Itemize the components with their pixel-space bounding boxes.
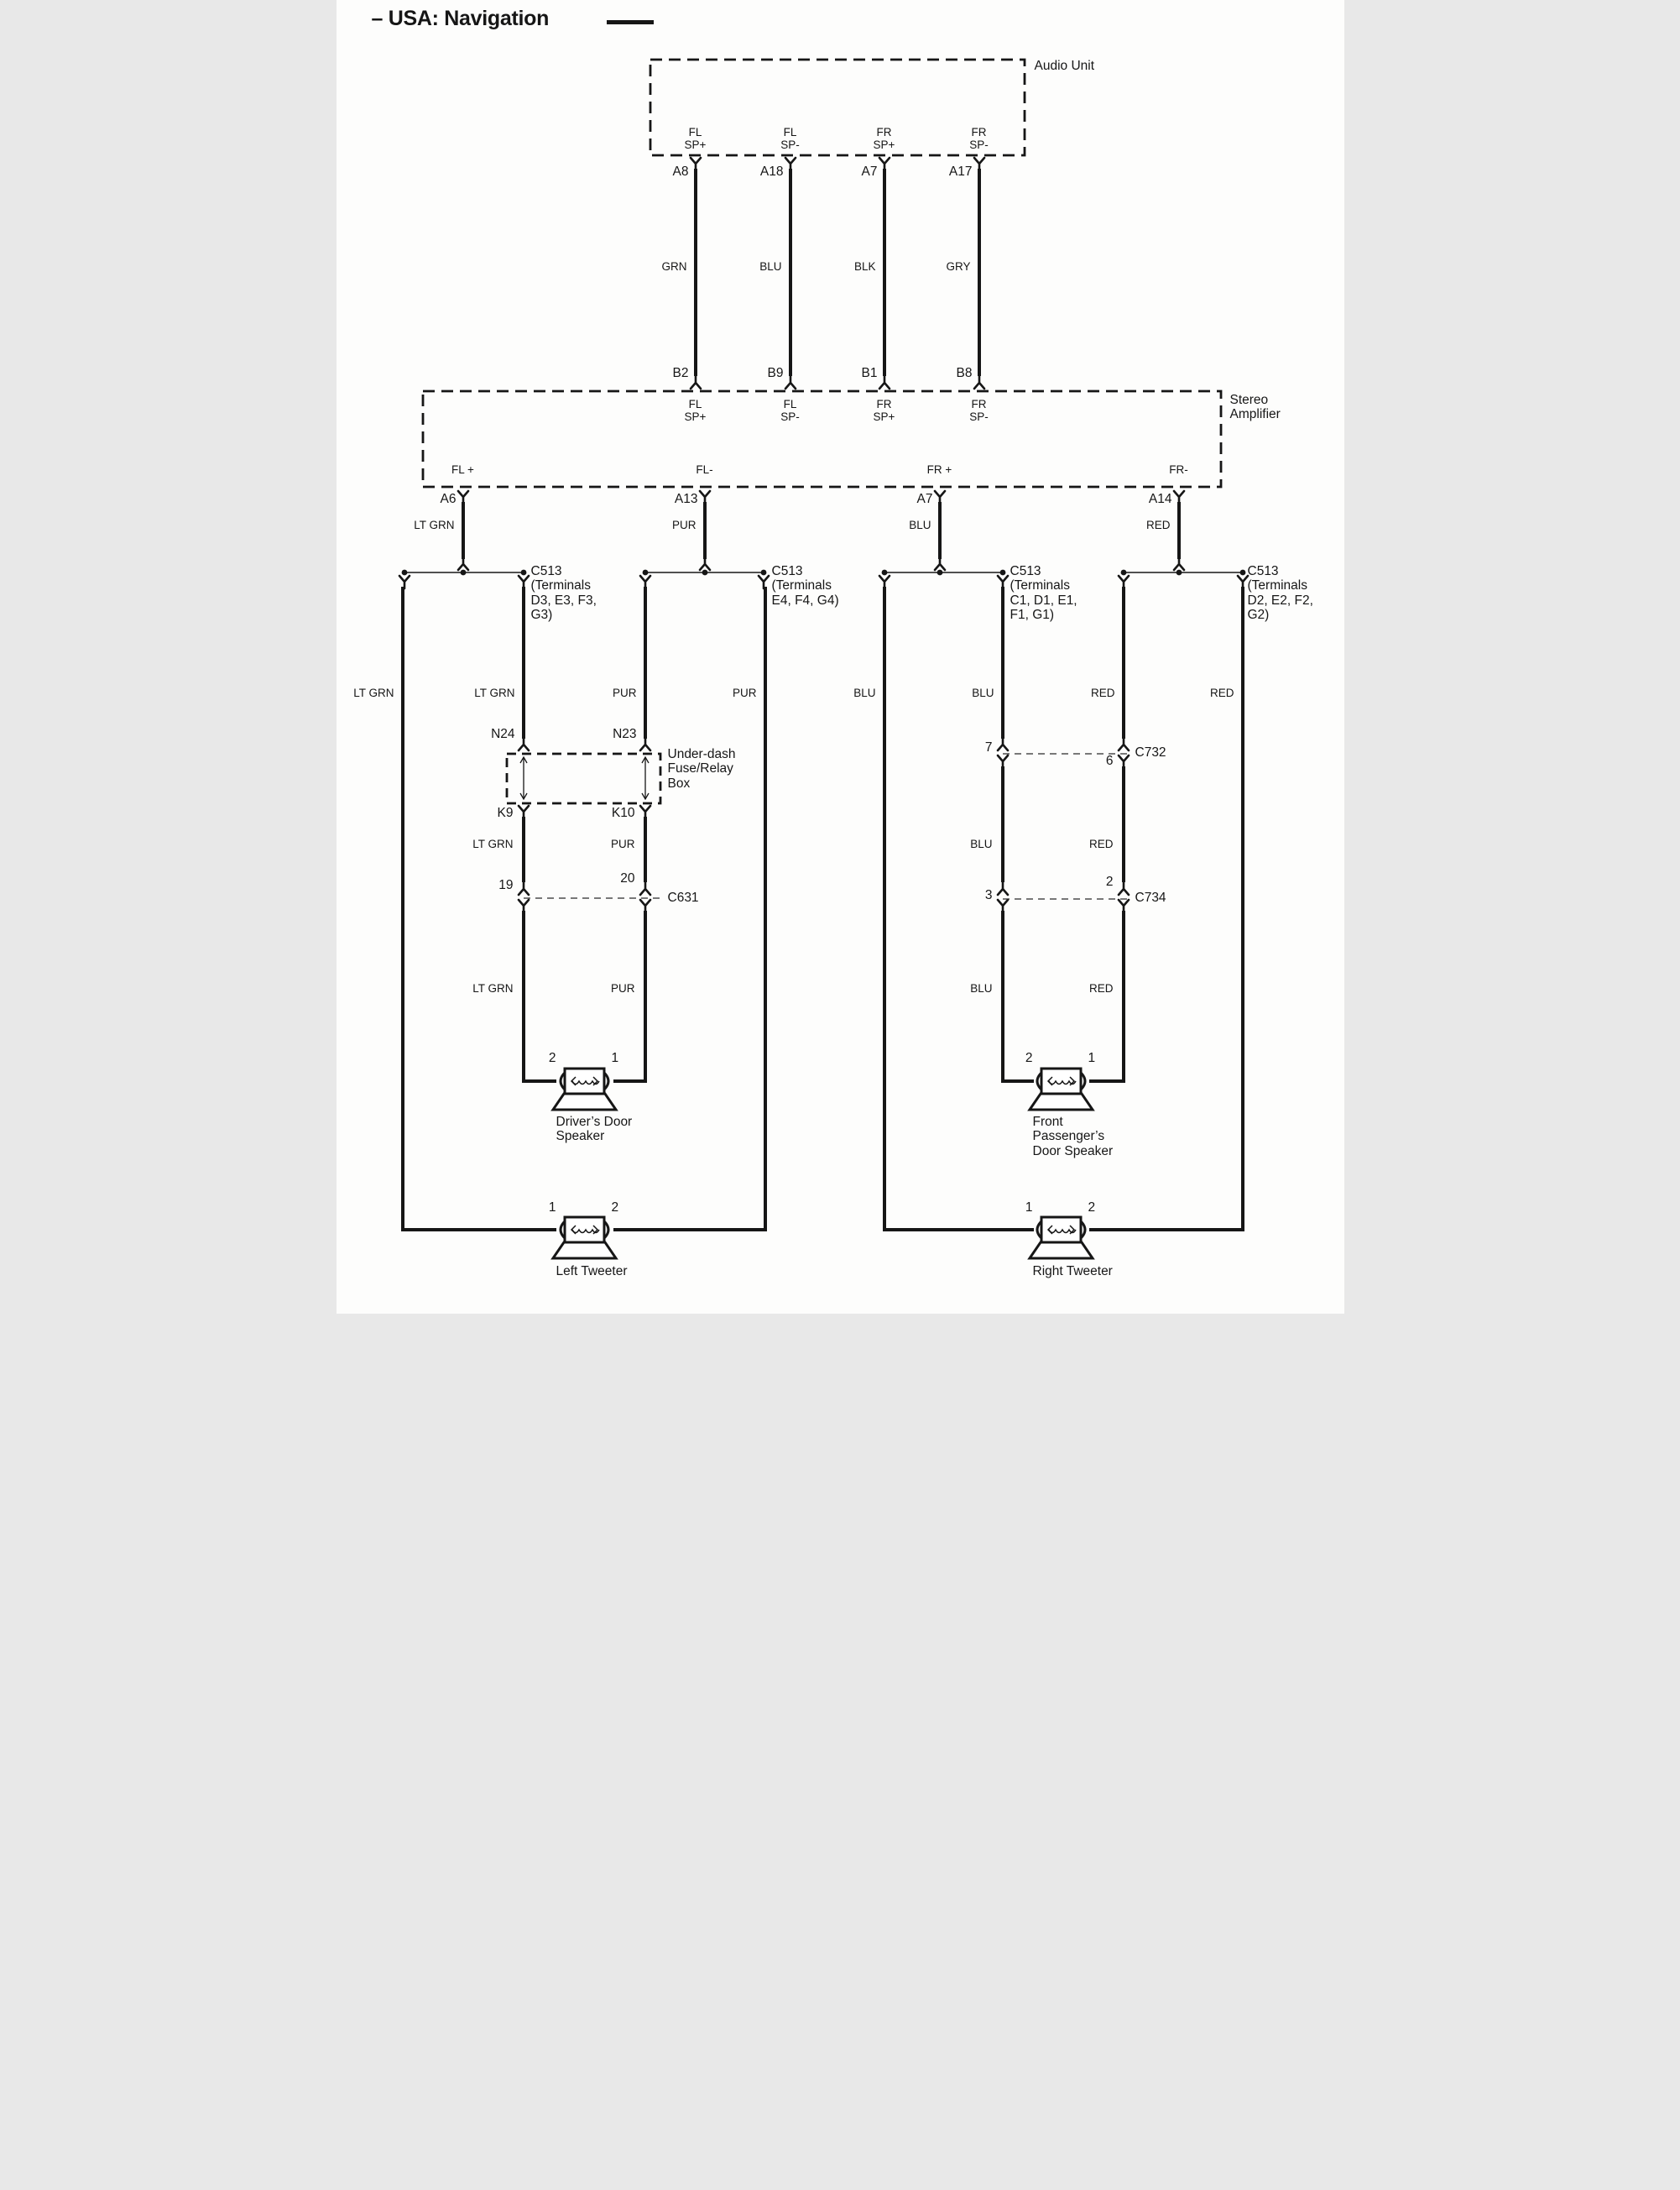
terminal-a17: A17: [922, 165, 973, 179]
driver-speaker-pin1: 1: [612, 1051, 619, 1065]
passenger-speaker-pin1: 1: [1088, 1051, 1096, 1065]
wire7-color-mid: RED: [1063, 838, 1114, 850]
terminal-n24: N24: [465, 727, 515, 741]
amp-pin-fr-sp-minus: FRSP-: [956, 398, 1003, 423]
wire-color-blu-top: BLU: [732, 260, 782, 273]
inline-connector-forks: [519, 738, 1129, 912]
connector-c513-3: C513(TerminalsC1, D1, E1,F1, G1): [1010, 564, 1077, 622]
wire3-color-low: PUR: [585, 982, 635, 995]
wire5-color: BLU: [826, 687, 876, 699]
amp-out-fl-plus: FL +: [443, 463, 483, 476]
wire1-color: LT GRN: [344, 687, 394, 699]
amp-out-fr-minus: FR-: [1159, 463, 1199, 476]
terminal-b2: B2: [639, 366, 689, 380]
amp-output-wires: [463, 502, 1179, 559]
wire7-color: RED: [1065, 687, 1115, 699]
title-rule: [607, 20, 654, 24]
audio-to-amp-connector-forks: [691, 158, 984, 389]
passenger-speaker-label: FrontPassenger’sDoor Speaker: [1033, 1115, 1114, 1158]
terminal-a6: A6: [406, 492, 457, 506]
pin-7: 7: [942, 740, 993, 755]
wire-color-grn: GRN: [637, 260, 687, 273]
driver-door-speaker-icon: [553, 1069, 616, 1110]
pin-6: 6: [1063, 754, 1114, 768]
terminal-n23: N23: [587, 727, 637, 741]
audio-pin-fl-sp-minus: FLSP-: [767, 126, 814, 151]
terminal-b8: B8: [922, 366, 973, 380]
front-passenger-door-speaker-icon: [1030, 1069, 1093, 1110]
audio-pin-fr-sp-minus: FRSP-: [956, 126, 1003, 151]
terminal-k10: K10: [585, 806, 635, 820]
wire-color-pur-a13: PUR: [646, 519, 697, 531]
wire6-color-low: BLU: [942, 982, 993, 995]
wire-color-blk: BLK: [826, 260, 876, 273]
pin-3: 3: [942, 888, 993, 902]
wire7-color-low: RED: [1063, 982, 1114, 995]
terminal-a8: A8: [639, 165, 689, 179]
wire6-color-mid: BLU: [942, 838, 993, 850]
fuse-relay-box: [507, 754, 660, 803]
wire-color-gry: GRY: [921, 260, 971, 273]
amp-output-forks: [458, 491, 1184, 570]
terminal-b1: B1: [827, 366, 878, 380]
wire3-color-mid: PUR: [585, 838, 635, 850]
connector-c631: C631: [668, 891, 699, 905]
left-tweeter-pin2: 2: [612, 1200, 619, 1215]
wire3-color: PUR: [587, 687, 637, 699]
wire4-color: PUR: [707, 687, 757, 699]
connector-c513-1: C513(TerminalsD3, E3, F3,G3): [531, 564, 597, 622]
wire6-color: BLU: [944, 687, 994, 699]
terminal-a18: A18: [733, 165, 784, 179]
wire2-color-low: LT GRN: [463, 982, 514, 995]
terminal-a13: A13: [648, 492, 698, 506]
terminal-b9: B9: [733, 366, 784, 380]
driver-speaker-label: Driver’s DoorSpeaker: [556, 1115, 633, 1144]
left-tweeter-label: Left Tweeter: [556, 1264, 628, 1278]
pin-20: 20: [585, 871, 635, 886]
wire-color-red-a14: RED: [1120, 519, 1171, 531]
connector-c734: C734: [1135, 891, 1166, 905]
wire-color-ltgrn-a6: LT GRN: [404, 519, 455, 531]
wire-color-blu-a7: BLU: [881, 519, 931, 531]
right-tweeter-pin1: 1: [983, 1200, 1033, 1215]
terminal-k9: K9: [463, 806, 514, 820]
amp-pin-fr-sp-plus: FRSP+: [861, 398, 908, 423]
audio-pin-fr-sp-plus: FRSP+: [861, 126, 908, 151]
amp-out-fl-minus: FL-: [685, 463, 725, 476]
connector-c513-4: C513(TerminalsD2, E2, F2,G2): [1248, 564, 1313, 622]
left-tweeter-icon: [553, 1217, 616, 1258]
harness-wires: [403, 587, 1243, 1230]
driver-speaker-pin2: 2: [506, 1051, 556, 1065]
terminal-a7-audio: A7: [827, 165, 878, 179]
wire2-color: LT GRN: [465, 687, 515, 699]
passenger-speaker-pin2: 2: [983, 1051, 1033, 1065]
fuse-box-internal-links: [520, 757, 649, 799]
left-tweeter-pin1: 1: [506, 1200, 556, 1215]
wire2-color-mid: LT GRN: [463, 838, 514, 850]
amp-pin-fl-sp-minus: FLSP-: [767, 398, 814, 423]
fuse-relay-box-label: Under-dashFuse/RelayBox: [668, 747, 736, 791]
terminal-a7-amp: A7: [883, 492, 933, 506]
audio-unit-label: Audio Unit: [1035, 59, 1095, 73]
wiring-diagram-page: – USA: Navigation Audio Unit FLSP+ FLSP-…: [337, 0, 1344, 1314]
audio-pin-fl-sp-plus: FLSP+: [672, 126, 719, 151]
right-tweeter-icon: [1030, 1217, 1093, 1258]
terminal-a14: A14: [1122, 492, 1172, 506]
wiring-diagram-graphics: [337, 0, 1344, 1314]
connector-c732: C732: [1135, 745, 1166, 760]
right-tweeter-label: Right Tweeter: [1033, 1264, 1113, 1278]
amp-out-fr-plus: FR +: [920, 463, 960, 476]
page-title: – USA: Navigation: [372, 7, 550, 31]
amp-pin-fl-sp-plus: FLSP+: [672, 398, 719, 423]
pin-19: 19: [463, 878, 514, 892]
right-tweeter-pin2: 2: [1088, 1200, 1096, 1215]
stereo-amplifier-label: StereoAmplifier: [1230, 393, 1281, 422]
wire8-color: RED: [1184, 687, 1234, 699]
stereo-amplifier-box: [423, 391, 1221, 487]
connector-c513-2: C513(TerminalsE4, F4, G4): [772, 564, 839, 608]
pin-2: 2: [1063, 875, 1114, 889]
